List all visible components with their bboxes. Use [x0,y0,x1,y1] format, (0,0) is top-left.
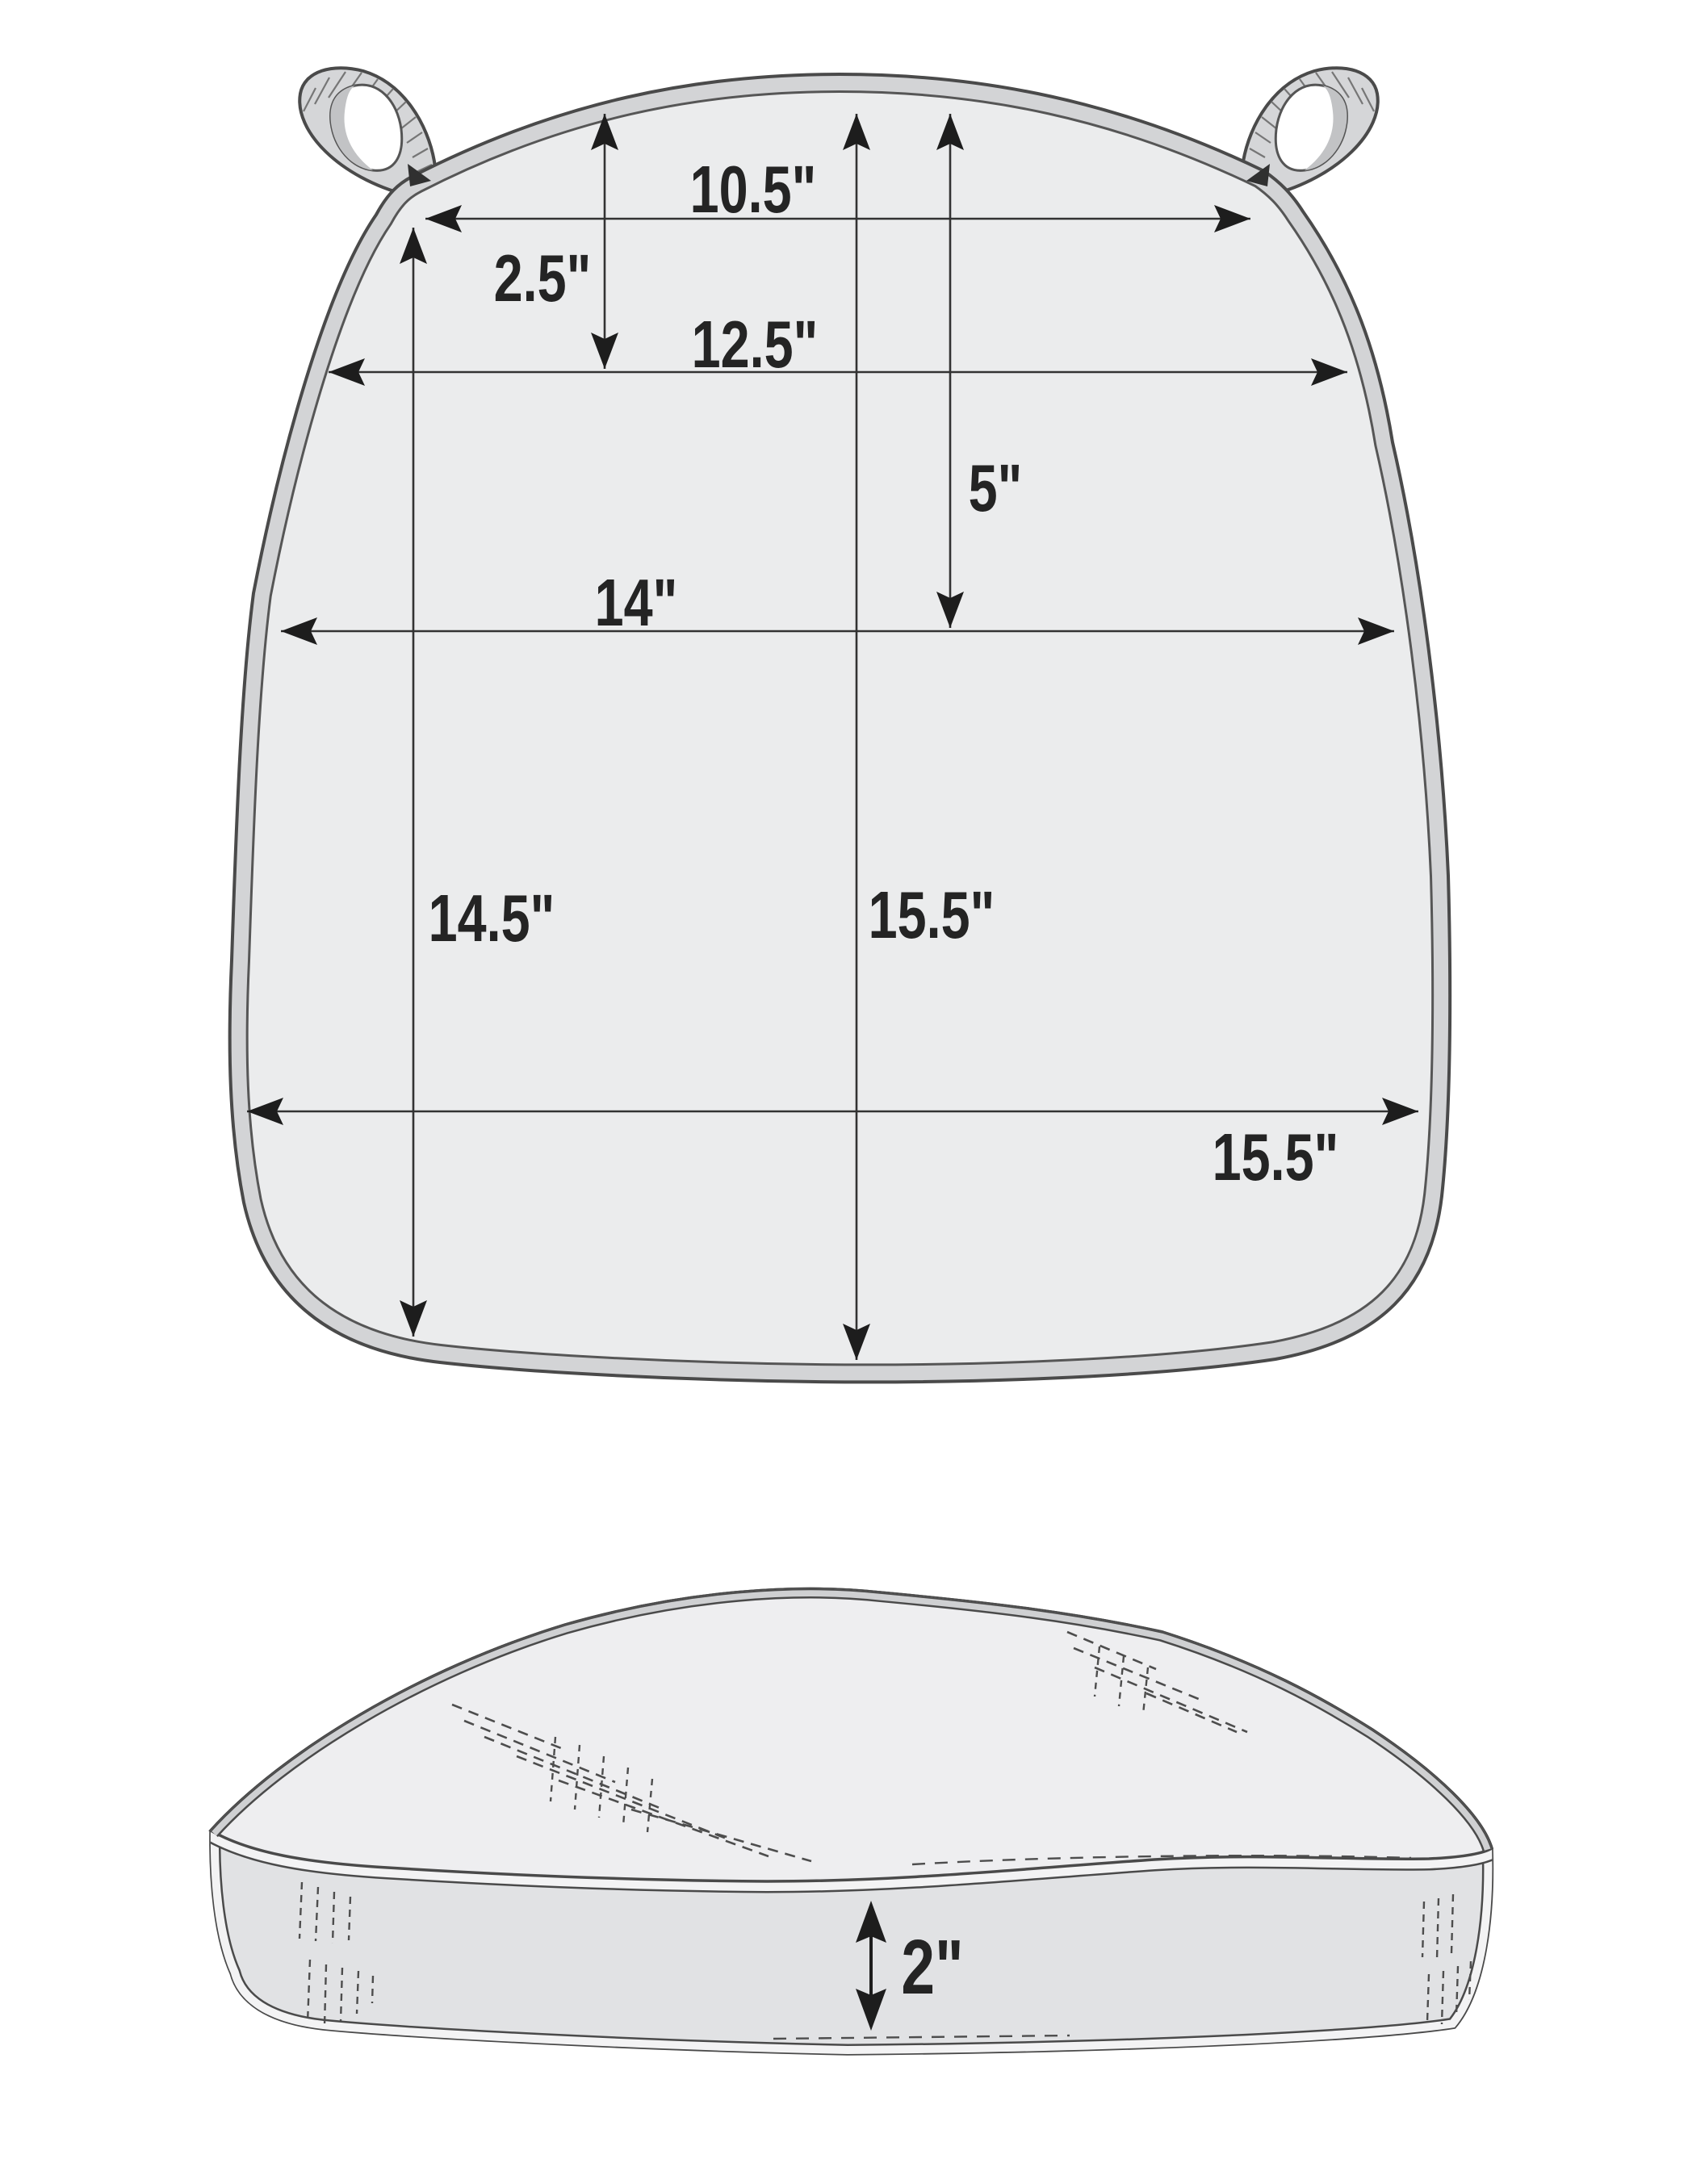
svg-text:12.5": 12.5" [692,307,819,382]
svg-text:15.5": 15.5" [1213,1119,1339,1195]
svg-text:2": 2" [901,1924,963,2010]
svg-text:15.5": 15.5" [869,877,995,952]
svg-text:5": 5" [969,450,1023,525]
svg-text:10.5": 10.5" [690,152,817,227]
svg-text:2.5": 2.5" [494,241,592,316]
svg-text:14.5": 14.5" [429,881,555,956]
svg-text:14": 14" [595,565,678,640]
